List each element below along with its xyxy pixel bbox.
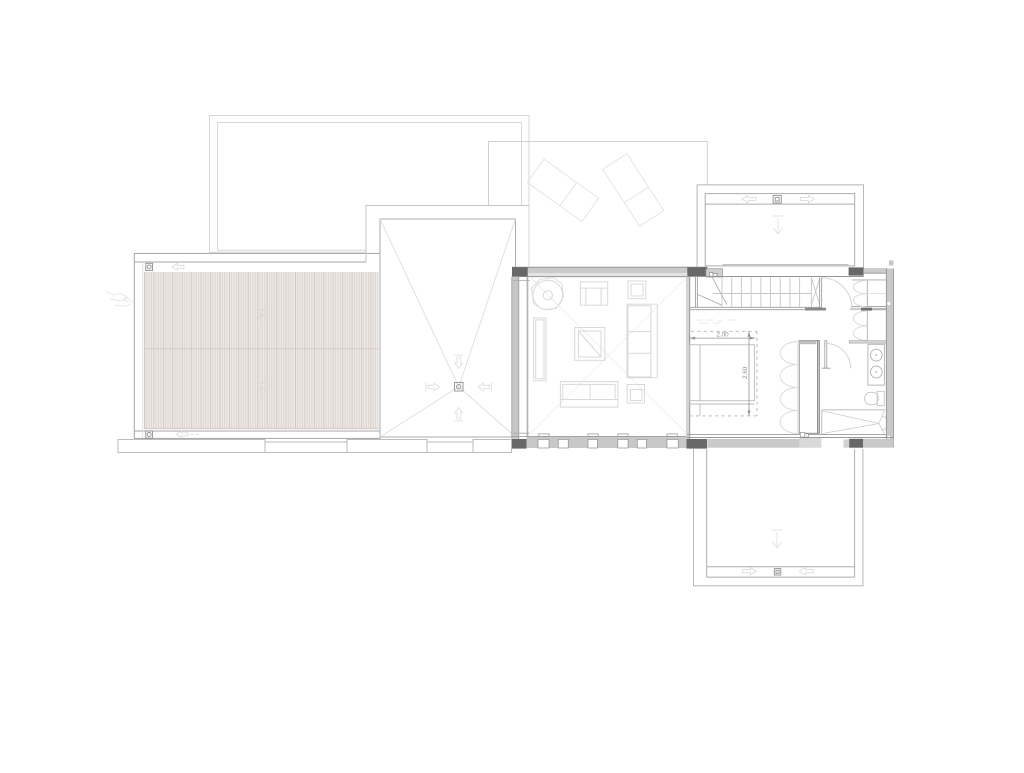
svg-text:2.00: 2.00 [716,332,729,339]
svg-text:2.60: 2.60 [742,366,749,379]
